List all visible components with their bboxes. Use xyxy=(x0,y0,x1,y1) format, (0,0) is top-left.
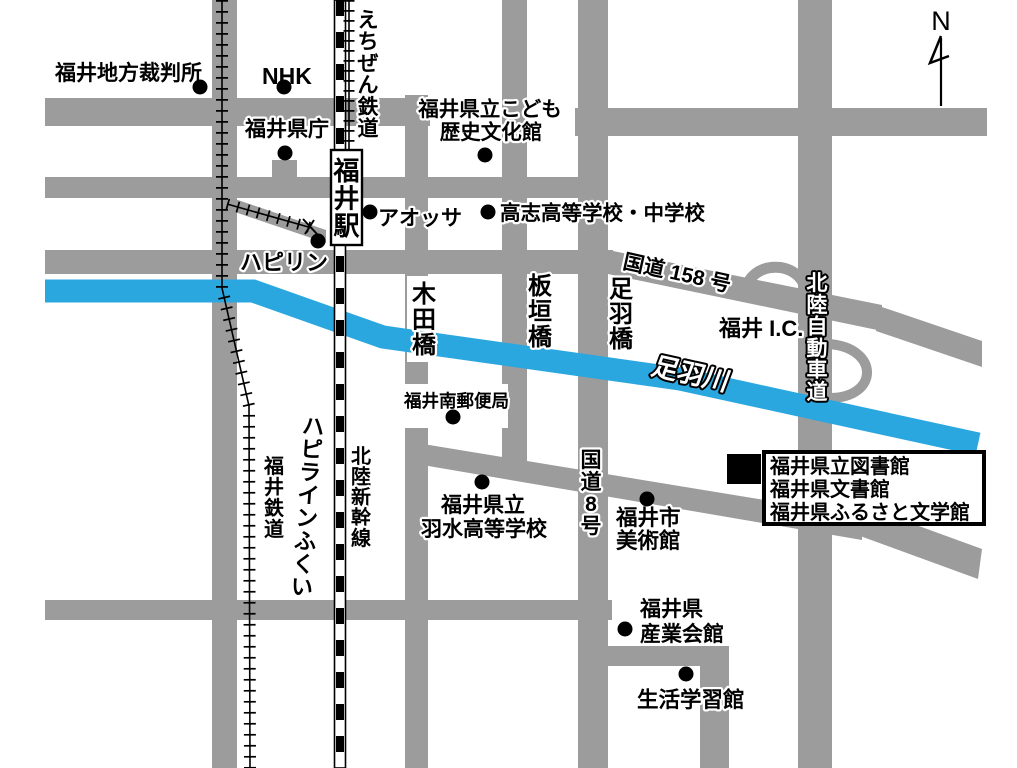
prefectural-office-building-block xyxy=(272,160,297,179)
hokuriku-shinkansen-label: 北陸新幹線 xyxy=(351,445,372,550)
fukui-access-map: 福井駅 福井県立図書館 福井県文書館 福井県ふるさと文学館 福井地方裁判所 NH… xyxy=(0,0,1017,768)
route8-label: 国道8号 xyxy=(581,449,602,538)
map-canvas: 福井駅 福井県立図書館 福井県文書館 福井県ふるさと文学館 福井地方裁判所 NH… xyxy=(0,0,1017,768)
city-art-museum-label-line2: 美術館 xyxy=(616,528,681,553)
road-top-right-horizontal xyxy=(575,108,987,136)
fukui-ic-label: 福井 I.C. xyxy=(718,316,803,341)
road-route8-vertical xyxy=(578,0,608,768)
happiring-dot xyxy=(311,234,326,249)
lifelong-learning-center-dot xyxy=(679,667,694,682)
aossa-dot xyxy=(363,205,378,220)
destination-line3: 福井県ふるさと文学館 xyxy=(769,500,970,524)
asuwa-bridge-label: 足羽橋 xyxy=(609,276,634,353)
destination-marker-square xyxy=(727,454,761,484)
children-history-museum-dot xyxy=(478,148,493,163)
district-court-label: 福井地方裁判所 xyxy=(54,61,202,85)
road-kida-vertical xyxy=(405,95,428,768)
industry-hall-label-line1: 福井県 xyxy=(639,598,703,621)
destination: 福井県立図書館 福井県文書館 福井県ふるさと文学館 xyxy=(727,452,984,524)
prefectural-office-dot xyxy=(278,146,293,161)
industry-hall-label-line2: 産業会館 xyxy=(640,622,724,646)
itagaki-bridge-label: 板垣橋 xyxy=(528,273,553,351)
fukui-station-label: 福井駅 xyxy=(332,156,359,241)
koshi-school-label: 高志高等学校・中学校 xyxy=(500,201,705,225)
children-history-museum-label-line1: 福井県立こども xyxy=(417,97,562,121)
happiring-label: ハピリン xyxy=(240,250,328,275)
road-bottom-horizontal xyxy=(45,600,612,620)
lifelong-learning-center-label: 生活学習館 xyxy=(637,687,745,712)
usui-school-dot xyxy=(475,475,490,490)
district-court-dot xyxy=(193,80,208,95)
south-post-office-label: 福井南郵便局 xyxy=(403,391,509,411)
south-post-office-dot xyxy=(446,410,461,425)
nhk-dot xyxy=(277,80,292,95)
city-art-museum-dot xyxy=(640,492,655,507)
fukui-station-box: 福井駅 xyxy=(331,150,362,245)
prefectural-office-label: 福井県庁 xyxy=(244,117,329,141)
destination-line2: 福井県文書館 xyxy=(769,477,890,501)
kida-bridge-label: 木田橋 xyxy=(411,281,437,359)
compass-north-label: N xyxy=(931,6,951,36)
aossa-label: アオッサ xyxy=(378,207,462,230)
city-art-museum-label-line1: 福井市 xyxy=(615,505,681,530)
usui-school-label-line1: 福井県立 xyxy=(440,493,525,517)
fukui-railway-label: 福井鉄道 xyxy=(263,455,284,541)
road-left-vertical xyxy=(212,0,237,768)
destination-line1: 福井県立図書館 xyxy=(769,454,910,478)
usui-school-label-line2: 羽水高等学校 xyxy=(421,517,548,541)
koshi-school-dot xyxy=(481,205,496,220)
industry-hall-dot xyxy=(618,622,633,637)
road-happiring-horizontal xyxy=(45,250,613,274)
echizen-railway-label: えちぜん鉄道 xyxy=(358,9,379,141)
children-history-museum-label-line2: 歴史文化館 xyxy=(440,120,543,144)
hokuriku-expressway-label: 北陸自動車道 xyxy=(807,272,828,404)
